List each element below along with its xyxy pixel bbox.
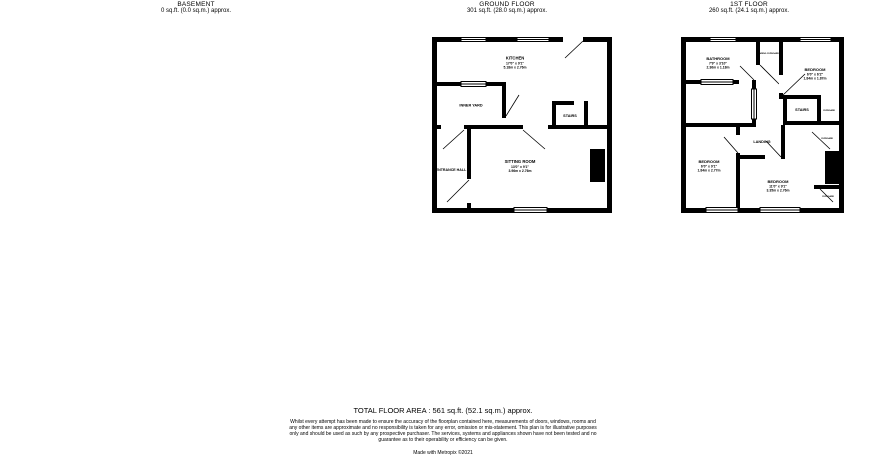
- bathroom-label: BATHROOM: [706, 56, 730, 61]
- bedroom-side-metric: 1.84m x 2.77m: [698, 169, 721, 173]
- basement-area: 0 sq.ft. (0.0 sq.m.) approx.: [86, 8, 306, 15]
- ground-floor-title: GROUND FLOOR: [397, 1, 617, 8]
- cupboard-label-2: CUPBOARD: [821, 137, 834, 140]
- basement-header: BASEMENT 0 sq.ft. (0.0 sq.m.) approx.: [86, 1, 306, 15]
- bedroom-front-label: BEDROOM: [805, 67, 827, 72]
- first-stairs-label: STAIRS: [795, 108, 809, 112]
- cupboard-label-1: CUPBOARD: [823, 109, 836, 112]
- inner-yard-label: INNER YARD: [459, 104, 482, 108]
- kitchen-metric: 5.18m x 2.76m: [504, 66, 527, 70]
- ground-floor-header: GROUND FLOOR 301 sq.ft. (28.0 sq.m.) app…: [397, 1, 617, 15]
- bedroom-side-label: BEDROOM: [699, 159, 721, 164]
- first-floor-plan: BATHROOM 7'9" x 3'10" 2.36m x 1.18m AIRI…: [681, 37, 844, 213]
- entrance-hall-label: ENTRANCE HALL: [436, 168, 467, 172]
- bedroom-back-label: BEDROOM: [768, 179, 790, 184]
- ground-floor-area: 301 sq.ft. (28.0 sq.m.) approx.: [397, 8, 617, 15]
- total-floor-area: TOTAL FLOOR AREA : 561 sq.ft. (52.1 sq.m…: [0, 406, 886, 415]
- landing-label: LANDING: [753, 140, 770, 144]
- sitting-room-metric: 3.96m x 2.76m: [509, 169, 532, 173]
- cupboard-label-3: CUPBOARD: [822, 195, 835, 198]
- ground-floor-plan: KITCHEN 17'0" x 9'1" 5.18m x 2.76m INNER…: [432, 37, 612, 213]
- kitchen-label: KITCHEN: [506, 56, 525, 61]
- bedroom-back-metric: 3.35m x 2.76m: [767, 189, 790, 193]
- disclaimer-text: Whilst every attempt has been made to en…: [287, 419, 599, 443]
- ground-stairs-label: STAIRS: [563, 114, 577, 118]
- first-floor-title: 1ST FLOOR: [639, 1, 859, 8]
- made-with-text: Made with Metropix ©2021: [0, 450, 886, 456]
- first-floor-header: 1ST FLOOR 260 sq.ft. (24.1 sq.m.) approx…: [639, 1, 859, 15]
- sitting-room-label: SITTING ROOM: [505, 159, 536, 164]
- bedroom-front-metric: 1.84m x 1.87m: [804, 77, 827, 81]
- airing-cupboard-label: AIRING CUPBOARD: [759, 52, 779, 55]
- first-floor-area: 260 sq.ft. (24.1 sq.m.) approx.: [639, 8, 859, 15]
- floorplan-page: { "colors": { "wall": "#000000", "backgr…: [0, 0, 886, 463]
- basement-title: BASEMENT: [86, 1, 306, 8]
- bathroom-metric: 2.36m x 1.18m: [707, 66, 730, 70]
